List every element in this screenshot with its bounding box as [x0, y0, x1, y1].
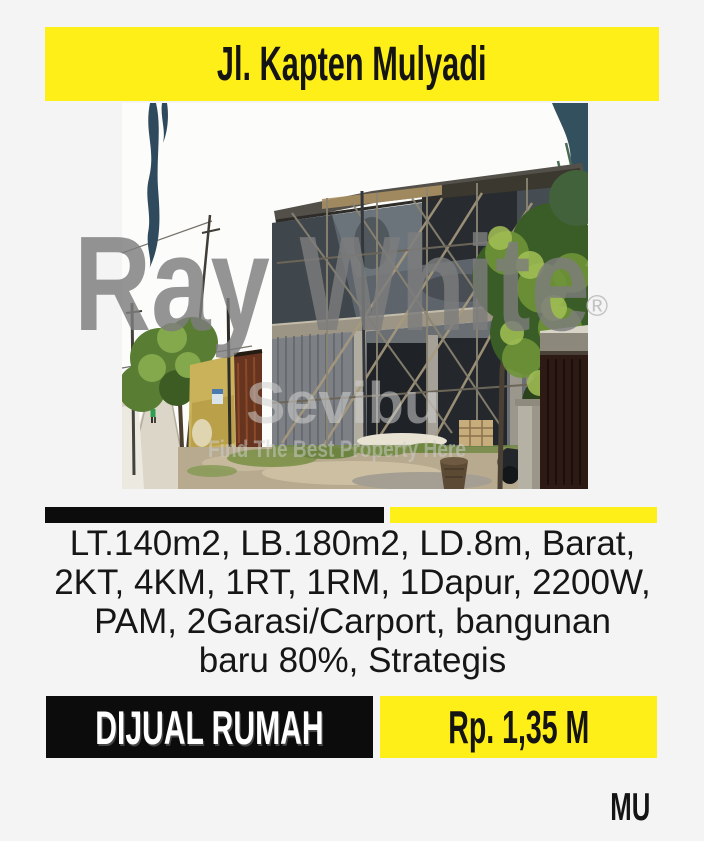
listing-flyer: Jl. Kapten Mulyadi	[0, 0, 704, 841]
property-photo	[122, 103, 588, 489]
registered-mark-icon: ®	[586, 290, 608, 323]
spec-line: baru 80%, Strategis	[45, 641, 660, 680]
agent-initials: MU	[600, 788, 661, 828]
divider-bar-yellow	[390, 507, 657, 523]
wood-stack	[459, 420, 493, 446]
listing-status-label: DIJUAL RUMAH	[95, 700, 323, 755]
maroon-gate	[540, 325, 588, 489]
spec-line: LT.140m2, LB.180m2, LD.8m, Barat,	[45, 524, 660, 563]
stone-pillar	[515, 399, 543, 489]
street-name-banner: Jl. Kapten Mulyadi	[45, 27, 659, 101]
street-name-title: Jl. Kapten Mulyadi	[217, 37, 487, 92]
price-badge: Rp. 1,35 M	[380, 696, 657, 758]
spec-line: PAM, 2Garasi/Carport, bangunan	[45, 602, 660, 641]
spec-line: 2KT, 4KM, 1RT, 1RM, 1Dapur, 2200W,	[45, 563, 660, 602]
property-specs: LT.140m2, LB.180m2, LD.8m, Barat, 2KT, 4…	[45, 524, 660, 680]
price-label: Rp. 1,35 M	[448, 700, 589, 754]
listing-status-badge: DIJUAL RUMAH	[46, 696, 373, 758]
basket	[440, 457, 468, 489]
divider-bar-black	[45, 507, 384, 523]
